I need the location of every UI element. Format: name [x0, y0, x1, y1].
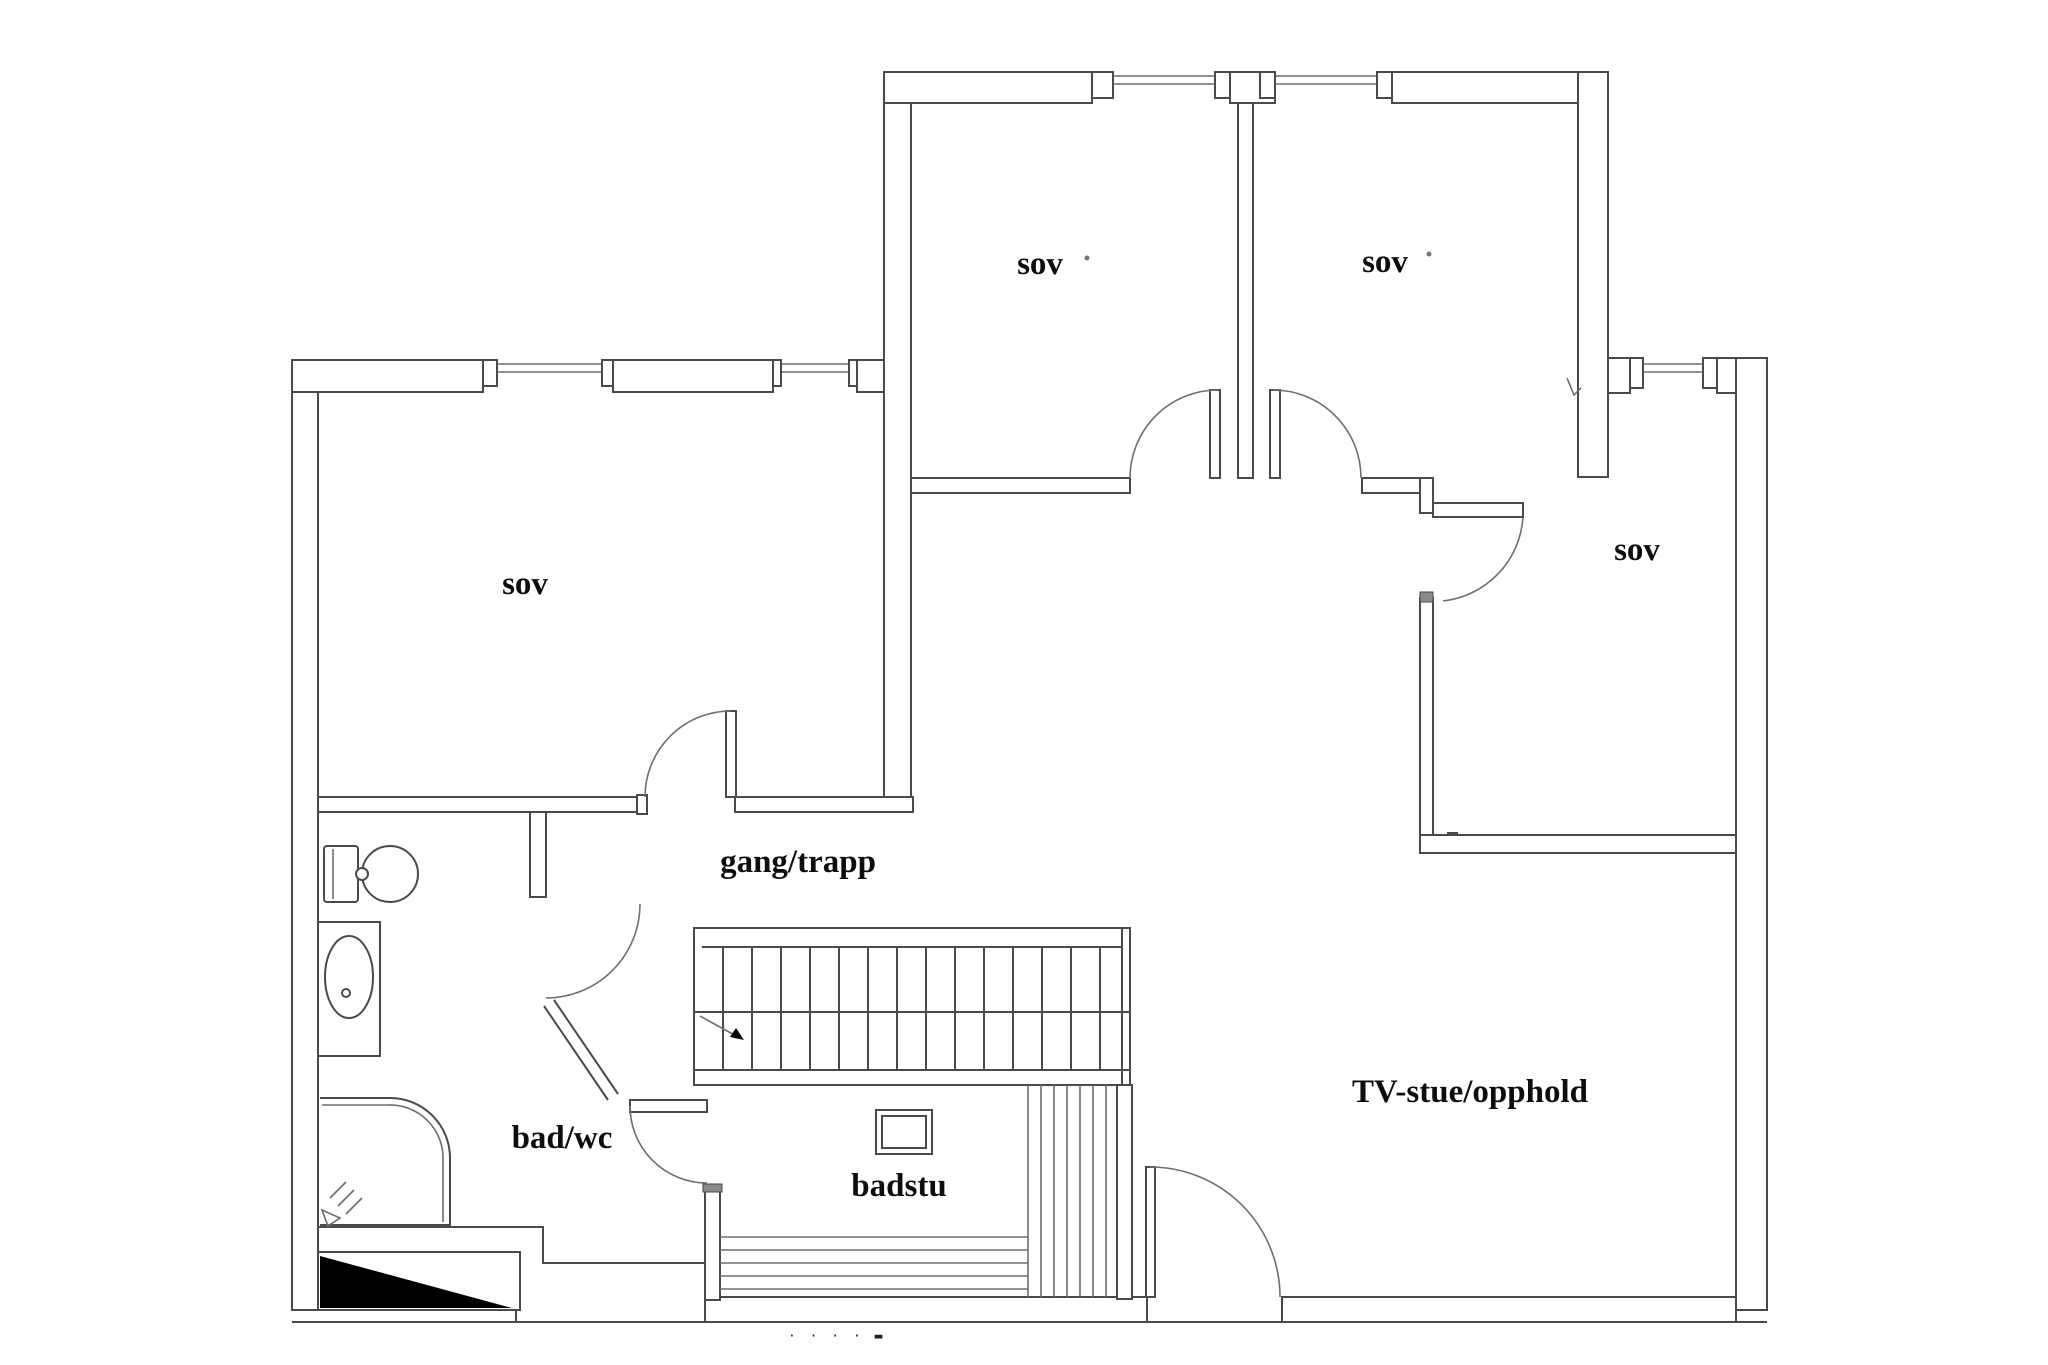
- floor-plan-drawing: sov sov sov sov gang/trapp bad/wc badstu…: [0, 0, 2048, 1365]
- sink: [318, 922, 380, 1056]
- door-top-middle-leaf: [1210, 390, 1220, 478]
- wall-top-rooms-bottom-a: [911, 478, 1130, 493]
- label-badstu: badstu: [851, 1168, 946, 1204]
- clipped-bottom-caption: · · · · ▬: [788, 1329, 885, 1344]
- wall-top-left-b: [613, 360, 773, 392]
- label-sov-right: sov: [1614, 532, 1660, 568]
- label-dot-1: [1085, 256, 1090, 261]
- wall-top-right-room-right: [1578, 72, 1608, 477]
- window-jambs: [483, 72, 1717, 388]
- window-left-1: [497, 364, 602, 372]
- wall-top-rooms-divider: [1238, 103, 1253, 478]
- wall-bottom-b: [1282, 1297, 1736, 1322]
- door-top-right-leaf: [1270, 390, 1280, 478]
- shower: [320, 1098, 450, 1226]
- window-top-middle-room: [1113, 76, 1215, 84]
- door-tv-arc: [1150, 1167, 1280, 1297]
- wall-step-b: [1717, 358, 1736, 393]
- wall-top-left-c: [857, 360, 884, 392]
- door-sov-left-arc: [645, 711, 731, 797]
- door-badstu-leaf: [630, 1100, 707, 1112]
- sauna-bench-horizontal-slats: [720, 1237, 1028, 1289]
- door-top-middle-arc: [1130, 390, 1218, 478]
- interior-walls: [318, 478, 1736, 1322]
- wall-bad-wc-right: [530, 812, 546, 897]
- toilet-hinge: [356, 868, 368, 880]
- wall-top-rooms-bottom-b: [1362, 478, 1420, 493]
- door-bad-wc-arc: [546, 904, 640, 998]
- wall-sov-left-bottom-b: [735, 797, 913, 812]
- toilet-cistern: [324, 846, 358, 902]
- window-top-right-room: [1275, 76, 1377, 84]
- wall-top-left-a: [292, 360, 483, 392]
- label-tv-stue: TV-stue/opphold: [1352, 1074, 1588, 1110]
- shower-spray-lines: [330, 1182, 362, 1214]
- shower-head-icon: [322, 1210, 340, 1226]
- jamb-right-sov-left-cap: [1420, 592, 1433, 602]
- shower-enclosure-outer: [320, 1098, 450, 1225]
- wall-bad-wc-diagonal: [544, 1000, 618, 1100]
- toilet-bowl: [362, 846, 418, 902]
- jamb-sov-left-door: [637, 795, 647, 814]
- wall-sov-left-right-side: [884, 72, 911, 812]
- door-sov-left-leaf: [726, 711, 736, 797]
- sauna-bench-vertical-slats: [1028, 1085, 1106, 1297]
- door-right-sov-leaf: [1433, 503, 1523, 517]
- floor-plan-page: sov sov sov sov gang/trapp bad/wc badstu…: [0, 0, 2048, 1365]
- wall-bottom-a: [705, 1297, 1147, 1322]
- door-badstu-arc: [630, 1106, 707, 1183]
- jamb-right-sov-top: [1420, 478, 1433, 513]
- wall-sov-left-bottom-a: [318, 797, 637, 812]
- label-gang-trapp: gang/trapp: [720, 844, 876, 880]
- label-dot-2: [1427, 252, 1432, 257]
- wall-right-sov-bottom: [1420, 835, 1736, 853]
- wall-top-rooms-b: [1392, 72, 1608, 103]
- wall-step-a: [1608, 358, 1630, 393]
- toilet: [324, 846, 418, 902]
- window-left-2: [781, 364, 849, 372]
- door-top-right-arc: [1273, 390, 1361, 478]
- stairs-outline: [694, 928, 1130, 1085]
- label-sov-left: sov: [502, 566, 548, 602]
- label-bad-wc: bad/wc: [512, 1120, 613, 1156]
- sink-basin: [325, 936, 373, 1018]
- wall-top-rooms-a: [884, 72, 1092, 103]
- window-right-step: [1643, 364, 1703, 372]
- windows: [483, 72, 1717, 388]
- jamb-badstu-cap: [703, 1184, 722, 1192]
- wall-badstu-left-stub: [705, 1190, 720, 1300]
- bathroom-fixtures: [318, 846, 450, 1226]
- wall-right-outer: [1736, 358, 1767, 1310]
- door-tv-leaf: [1146, 1167, 1155, 1297]
- wall-badstu-right: [1117, 1085, 1132, 1299]
- door-right-sov-arc: [1443, 517, 1523, 601]
- wall-left-outer: [292, 360, 318, 1310]
- label-sov-top-middle: sov: [1017, 246, 1063, 282]
- wall-right-sov-left: [1420, 598, 1433, 851]
- label-sov-top-right: sov: [1362, 244, 1408, 280]
- staircase: [694, 928, 1130, 1085]
- sink-drain: [342, 989, 350, 997]
